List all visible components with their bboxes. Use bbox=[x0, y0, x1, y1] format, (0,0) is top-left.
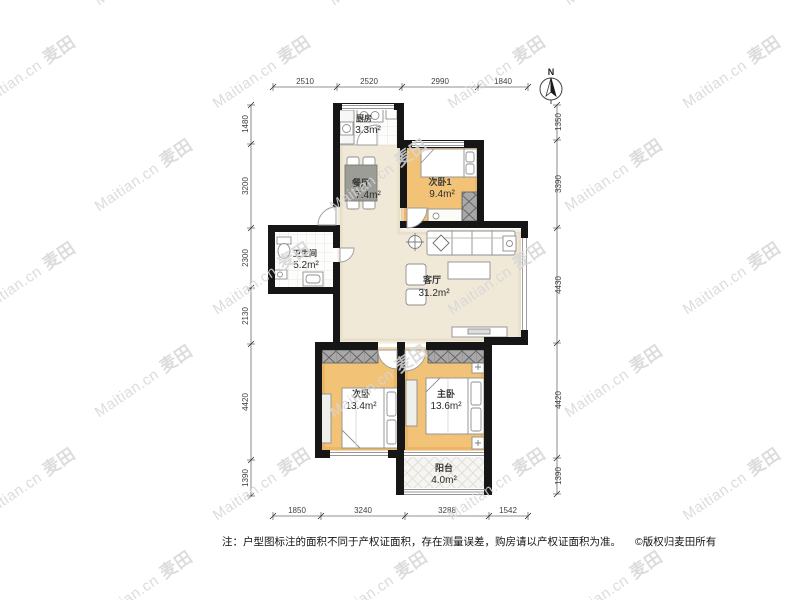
dim-right-4: 4420 bbox=[554, 391, 563, 409]
living-window bbox=[521, 238, 528, 330]
dim-top-2: 2520 bbox=[360, 77, 378, 86]
pillow bbox=[387, 420, 396, 444]
dim-right-5: 1390 bbox=[554, 467, 563, 485]
room-label-bedroom2-1: 次卧1 bbox=[428, 176, 451, 187]
pillow bbox=[466, 164, 474, 174]
dim-left-2: 3200 bbox=[241, 177, 250, 195]
dim-left-1: 1480 bbox=[241, 115, 250, 133]
kitchen-window bbox=[342, 104, 394, 110]
balcony-rail bbox=[404, 488, 484, 495]
dim-bottom-3: 3288 bbox=[438, 506, 456, 515]
room-area-bedroom2-1: 9.4m² bbox=[429, 189, 455, 200]
room-label-balcony: 阳台 bbox=[435, 462, 453, 473]
dim-bottom-4: 1542 bbox=[499, 506, 517, 515]
dim-left-3: 2300 bbox=[241, 249, 250, 267]
dim-left-6: 1390 bbox=[241, 469, 250, 487]
room-area-balcony: 4.0m² bbox=[431, 475, 457, 486]
room-label-kitchen: 厨房 bbox=[356, 113, 372, 123]
dim-line-bottom bbox=[273, 512, 528, 520]
bedroom2-window bbox=[330, 451, 388, 457]
north-compass: N bbox=[540, 67, 562, 104]
bedroom2-1-window bbox=[412, 141, 464, 147]
wardrobe bbox=[462, 192, 478, 221]
dim-left-5: 4420 bbox=[241, 393, 250, 411]
north-label: N bbox=[548, 67, 555, 77]
room-area-living: 31.2m² bbox=[418, 288, 450, 299]
dim-left-4: 2130 bbox=[241, 307, 250, 325]
room-area-bathroom: 5.2m² bbox=[293, 260, 319, 271]
room-area-dining: 7.4m² bbox=[355, 190, 381, 201]
entry-door bbox=[318, 207, 336, 225]
coffee-table bbox=[448, 262, 490, 279]
wardrobe bbox=[428, 350, 484, 363]
dim-line-right bbox=[553, 105, 561, 494]
floorplan-page: 厨房 3.3m² 餐厅 7.4m² 次卧1 9.4m² 卫生间 5.2m² 客厅… bbox=[0, 0, 799, 600]
pillow bbox=[387, 392, 396, 416]
toilet-tank bbox=[277, 237, 291, 244]
room-label-bathroom: 卫生间 bbox=[293, 248, 317, 258]
copyright-text: ©版权归麦田所有 bbox=[635, 536, 716, 548]
pillow bbox=[471, 382, 481, 405]
room-label-dining: 餐厅 bbox=[351, 177, 370, 188]
dim-top-4: 1840 bbox=[494, 77, 512, 86]
shelf bbox=[321, 394, 331, 443]
pillow bbox=[466, 152, 474, 162]
balcony-slider bbox=[404, 451, 484, 457]
disclaimer-note: 注：户型图标注的面积不同于产权证面积，存在测量误差，购房请以产权证面积为准。©版… bbox=[222, 534, 716, 549]
note-text: 注：户型图标注的面积不同于产权证面积，存在测量误差，购房请以产权证面积为准。 bbox=[222, 536, 621, 548]
floorplan-drawing: 厨房 3.3m² 餐厅 7.4m² 次卧1 9.4m² 卫生间 5.2m² 客厅… bbox=[0, 0, 799, 600]
room-label-living: 客厅 bbox=[422, 274, 441, 285]
room-label-bedroom2: 次卧 bbox=[352, 388, 370, 399]
dresser bbox=[406, 380, 417, 426]
dim-top-3: 2990 bbox=[431, 77, 449, 86]
dim-right-2: 3390 bbox=[554, 175, 563, 193]
dim-bottom-2: 3240 bbox=[354, 506, 372, 515]
dim-line-left bbox=[247, 105, 255, 496]
room-area-kitchen: 3.3m² bbox=[355, 125, 381, 136]
room-area-master: 13.6m² bbox=[430, 401, 462, 412]
wardrobe bbox=[322, 350, 378, 363]
pillow bbox=[471, 408, 481, 431]
dim-right-3: 4430 bbox=[554, 276, 563, 294]
room-label-master: 主卧 bbox=[437, 388, 455, 399]
room-area-bedroom2: 13.4m² bbox=[345, 401, 377, 412]
dim-right-1: 1350 bbox=[554, 113, 563, 131]
toilet bbox=[278, 244, 290, 259]
dim-top-1: 2510 bbox=[296, 77, 314, 86]
tv bbox=[468, 329, 490, 334]
kitchen-appliance bbox=[386, 109, 397, 119]
dim-bottom-1: 1850 bbox=[288, 506, 306, 515]
